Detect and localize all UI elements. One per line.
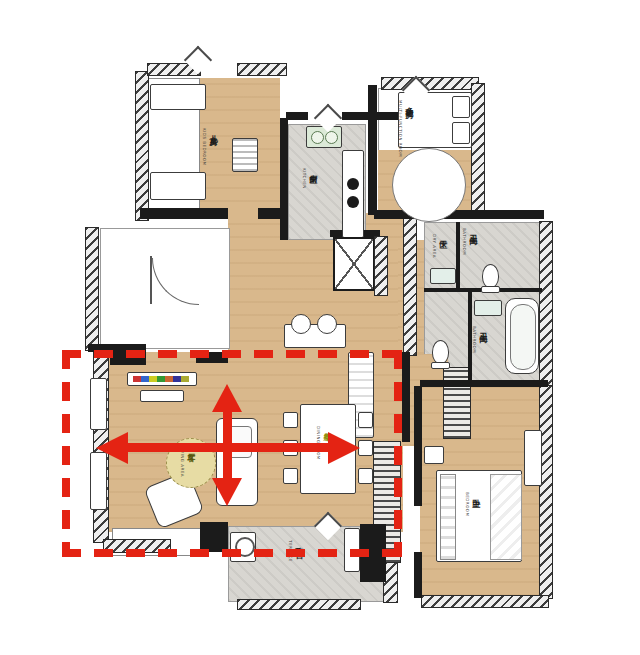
wall-wc-bath: [468, 292, 472, 382]
wall-kitchen-left: [280, 118, 288, 240]
wall-balcony-left-pier: [200, 522, 228, 552]
depth-arrow-top-head: [212, 384, 242, 412]
tv-console-decor: [133, 376, 189, 382]
wall-multi-top: [382, 78, 478, 89]
multi-room-pillow-1: [452, 96, 470, 118]
shaft-side-wall: [375, 237, 387, 295]
master-nightstand: [424, 446, 444, 464]
dining-chair-1: [283, 412, 298, 428]
dining-chair-3: [283, 468, 298, 484]
width-arrow-left-head: [96, 432, 128, 464]
bathroom2-sink: [474, 300, 502, 316]
wall-master-bottom: [422, 596, 548, 607]
entry-door-leaf: [150, 256, 152, 304]
dining-chair-5: [358, 440, 373, 456]
wall-kids-left: [136, 72, 148, 220]
wall-master-top: [420, 380, 548, 387]
kids-bed-1: [150, 84, 206, 110]
master-wardrobe: [444, 368, 470, 438]
bar-stool-2: [317, 314, 337, 334]
dry-area-sink: [430, 268, 456, 284]
kitchen-counter: [342, 150, 364, 238]
elevator-shaft: [333, 237, 375, 291]
wall-kitchen-top-1: [286, 112, 308, 120]
wall-master-right: [540, 386, 552, 598]
wall-kids-entry-1: [140, 208, 228, 219]
wall-dry-bath: [456, 222, 460, 288]
tv-bench: [140, 390, 184, 402]
bathtub-inner: [510, 304, 536, 370]
stove-burner-1: [347, 178, 359, 190]
wall-bath-top: [374, 210, 544, 219]
highlight-box-right: [394, 350, 402, 557]
master-bed-blanket: [490, 474, 522, 560]
kids-bed-2: [150, 172, 206, 200]
wall-master-left-1: [414, 386, 422, 506]
wc-toilet-tank: [431, 362, 450, 369]
wall-master-left-2: [414, 552, 422, 598]
highlight-box-top: [62, 350, 402, 358]
wall-bath-right: [540, 222, 552, 386]
kitchen-sink-basin-1: [311, 131, 324, 144]
dining-chair-6: [358, 468, 373, 484]
highlight-box-bottom: [62, 549, 402, 557]
bathroom1-toilet-bowl: [482, 264, 499, 288]
living-left-window-1: [90, 378, 107, 430]
kitchen-sink-basin-2: [325, 131, 338, 144]
wall-balcony-bottom: [238, 600, 360, 609]
wall-multi-left: [368, 85, 377, 215]
depth-arrow-shaft: [223, 410, 232, 480]
multi-room-pillow-2: [452, 122, 470, 144]
wall-kids-top-2: [238, 64, 286, 75]
stove-burner-2: [347, 196, 359, 208]
dining-chair-4: [358, 412, 373, 428]
wall-entry-left: [86, 228, 98, 350]
master-bed-pillows: [440, 474, 456, 560]
wall-multi-right: [472, 84, 484, 216]
master-closet: [524, 430, 542, 486]
floor-plan: KIDS BEDROOM 儿童房 KITCHEN 中厨区 MULTI-FUNCT…: [0, 0, 640, 655]
bar-stool-1: [291, 314, 311, 334]
wc-toilet-bowl: [432, 340, 449, 364]
kids-desk: [232, 138, 258, 172]
multi-room-round-rug: [392, 148, 466, 222]
bathroom1-toilet-tank: [481, 286, 500, 293]
depth-arrow-bottom-head: [212, 478, 242, 506]
wall-hall-bath-divider: [404, 215, 416, 355]
width-arrow-right-head: [328, 432, 360, 464]
highlight-box-left: [62, 350, 70, 557]
wall-dining-right: [402, 352, 410, 442]
